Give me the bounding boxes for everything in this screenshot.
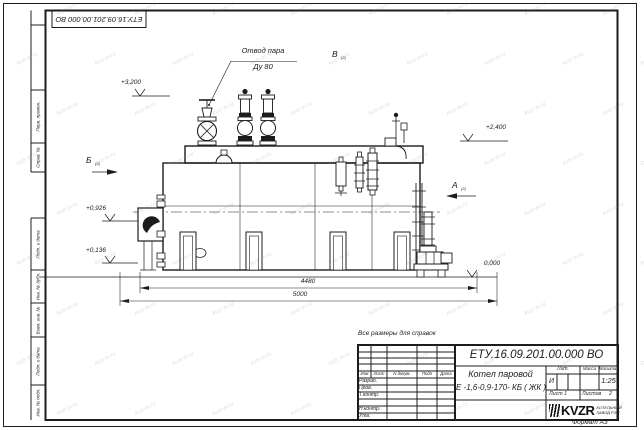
spring-logo-icon bbox=[549, 404, 560, 417]
dimension-text-4480: 4480 bbox=[286, 279, 330, 286]
logo-sub-line2: ЗАВОД РЭП bbox=[596, 411, 621, 416]
margin-label-inv-podl: Инв. № подл. bbox=[31, 385, 45, 420]
format-note: Формат А3 bbox=[572, 420, 608, 427]
logo-subtitle: КОТЕЛЬНЫЙ ЗАВОД РЭП bbox=[596, 406, 621, 415]
margin-label-podp-i-data: Подп. и дата bbox=[31, 218, 45, 270]
margin-label-perv-primen: Перв. примен. bbox=[31, 90, 45, 143]
elevation-text-3200: +3,200 bbox=[109, 80, 153, 87]
margin-label-vzam-inv: Взам. инв. № bbox=[31, 303, 45, 337]
col-list: Лист bbox=[371, 372, 387, 377]
doc-number: ЕТУ.16.09.201.00.000 ВО bbox=[456, 345, 617, 366]
product-name-line1: Котел паровой bbox=[456, 370, 545, 379]
row-nkontr: Н.контр. bbox=[359, 407, 387, 412]
mass-label: Масса bbox=[580, 367, 599, 372]
scale-label: Масштаб bbox=[599, 367, 618, 371]
product-name-line2: Е -1,6-0,9-170- КБ ( ЖК ) bbox=[456, 384, 545, 392]
view-label-b-ref: (2) bbox=[95, 162, 100, 166]
lit-value: И bbox=[546, 378, 557, 385]
view-label-a: А bbox=[452, 181, 458, 190]
margin-label-sprav-no: Справ. № bbox=[31, 143, 45, 172]
elevation-text-0000: 0,000 bbox=[470, 261, 514, 268]
row-utv: Утв. bbox=[359, 414, 387, 419]
col-date: Дата bbox=[437, 372, 455, 377]
logo-text: KVZR bbox=[561, 403, 594, 418]
sheets-word: Листов bbox=[582, 392, 604, 398]
top-stamp-number: ЕТУ.16.09.201.00.000 ВО bbox=[52, 11, 146, 27]
text-layer: ЕТУ.16.09.201.00.000 ВО Перв. примен. Сп… bbox=[0, 0, 644, 430]
view-label-v: В bbox=[332, 50, 338, 59]
lit-label: Лит. bbox=[546, 367, 580, 372]
view-label-v-ref: (2) bbox=[341, 56, 346, 60]
col-doc: N докум. bbox=[387, 372, 417, 377]
elevation-text-2400: +2,400 bbox=[474, 125, 518, 132]
sheets-count: 2 bbox=[609, 392, 617, 398]
margin-label-podp-i-data-2: Подп. и дата bbox=[31, 337, 45, 385]
col-izm: Изм bbox=[358, 372, 371, 377]
view-label-b: Б bbox=[86, 156, 92, 165]
reference-note: Все размеры для справок bbox=[358, 331, 436, 338]
scale-value: 1:25 bbox=[599, 377, 618, 385]
dimension-text-5000: 5000 bbox=[278, 292, 322, 299]
margin-label-inv-dubl: Инв. № дубл. bbox=[31, 270, 45, 303]
row-tkontr: Т.контр. bbox=[359, 393, 387, 398]
view-label-a-ref: (2) bbox=[461, 187, 466, 191]
row-razrab: Разраб. bbox=[359, 379, 387, 384]
callout-dn80: Ду 80 bbox=[228, 63, 298, 71]
elevation-text-0926: +0,926 bbox=[74, 206, 118, 213]
manufacturer-logo: KVZR КОТЕЛЬНЫЙ ЗАВОД РЭП bbox=[549, 403, 622, 418]
row-prov: Пров. bbox=[359, 386, 387, 391]
callout-steam-outlet: Отвод пара bbox=[228, 47, 298, 55]
drawing-sheet: ЕТУ.16.09.201.00.000 ВО Перв. примен. Сп… bbox=[0, 0, 644, 430]
sheet-number: Лист 1 bbox=[549, 392, 579, 398]
elevation-text-0136: +0,136 bbox=[74, 248, 118, 255]
col-sign: Подп bbox=[417, 372, 437, 377]
